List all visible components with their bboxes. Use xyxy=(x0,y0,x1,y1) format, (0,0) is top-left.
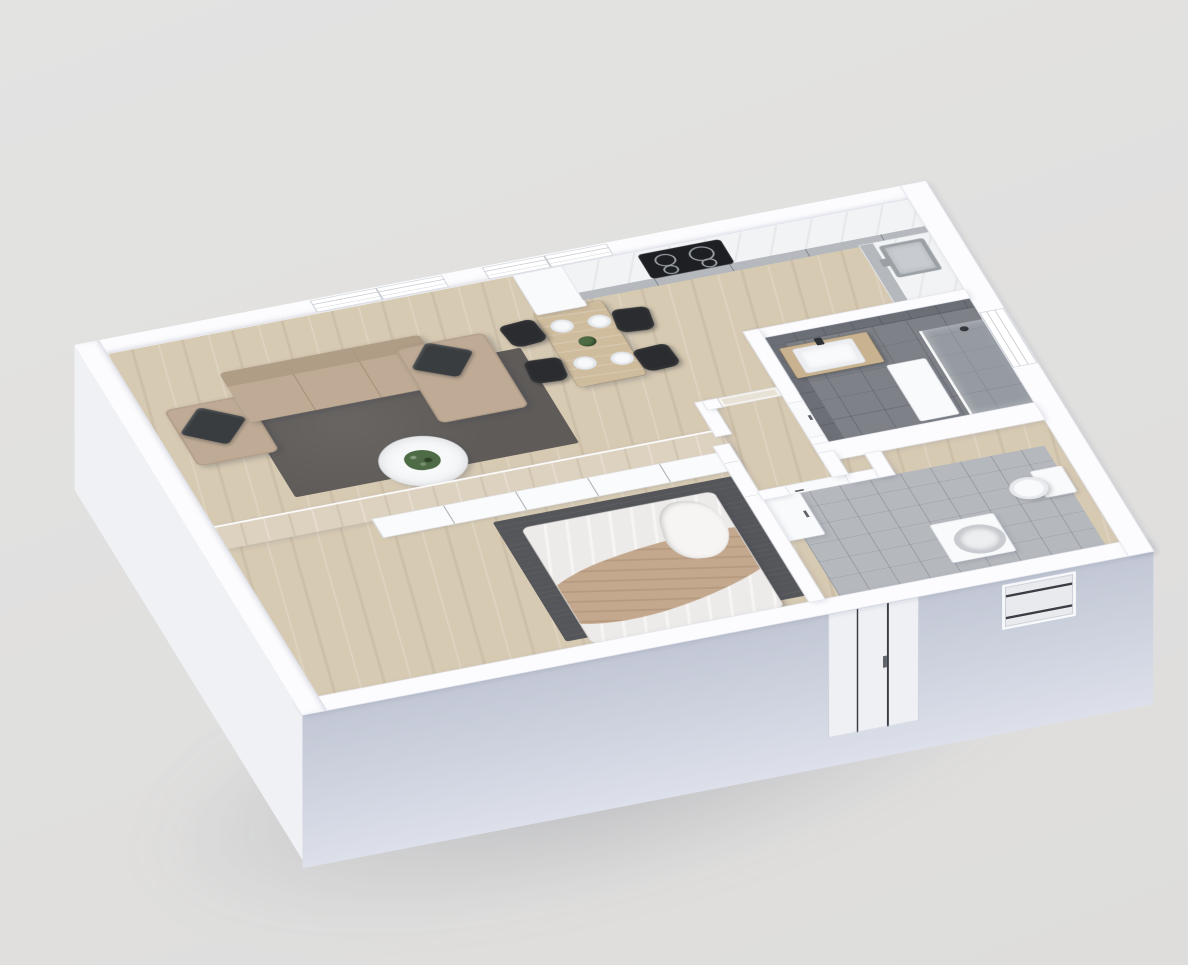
entrance-door xyxy=(828,596,919,738)
wc-window-exterior xyxy=(1002,571,1076,630)
render-canvas xyxy=(0,0,1188,965)
apartment-3d-model xyxy=(75,181,1154,715)
entrance-door-handle xyxy=(883,655,887,667)
